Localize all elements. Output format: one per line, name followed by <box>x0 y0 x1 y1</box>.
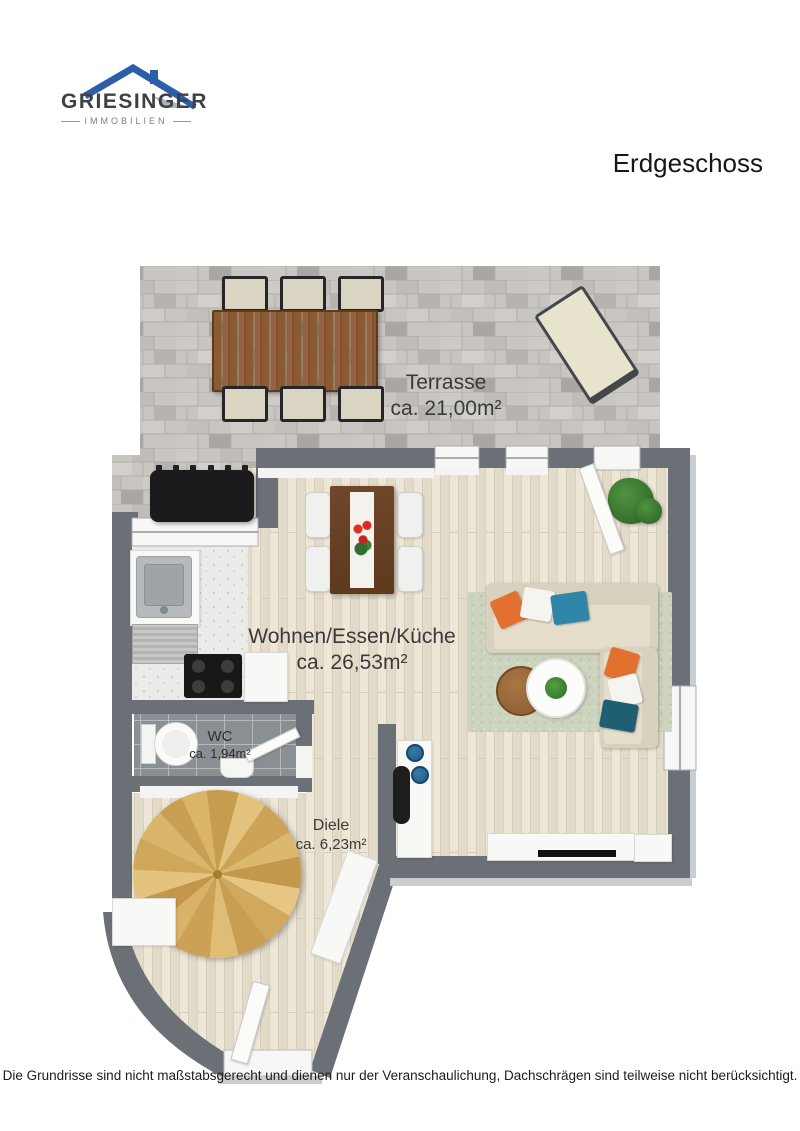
terrace-chair <box>222 276 268 312</box>
pillow-blue <box>550 591 590 626</box>
corner-plant-small <box>636 498 662 524</box>
coffee-table-white <box>526 658 586 718</box>
floor-plan-page: GRIESINGER IMMOBILIEN Erdgeschoss <box>0 0 800 1131</box>
dining-table <box>330 486 394 594</box>
terrace-dining-table <box>212 310 378 392</box>
room-label-wohnen: Wohnen/Essen/Küche ca. 26,53m² <box>248 624 455 675</box>
room-name: Terrasse <box>391 370 502 396</box>
room-area: ca. 6,23m² <box>296 836 367 854</box>
grill-knobs <box>150 465 254 471</box>
room-area: ca. 1,94m² <box>189 746 250 762</box>
room-name: Diele <box>296 816 367 836</box>
left-window <box>132 518 258 546</box>
kitchen-sink <box>136 556 192 618</box>
room-label-wc: WC ca. 1,94m² <box>189 728 250 762</box>
room-name: WC <box>189 728 250 746</box>
dining-chair <box>305 546 331 592</box>
tv-lowboard <box>487 833 635 861</box>
room-label-terrasse: Terrasse ca. 21,00m² <box>391 370 502 421</box>
room-label-diele: Diele ca. 6,23m² <box>296 816 367 854</box>
table-plant <box>545 677 567 699</box>
cooktop <box>184 654 242 698</box>
dining-chair <box>397 546 423 592</box>
terrace-chair <box>338 276 384 312</box>
bbq-grill <box>150 470 254 522</box>
pillow-teal <box>599 699 639 733</box>
desk-chair <box>393 766 410 824</box>
disclaimer-text: Die Grundrisse sind nicht maßstabsgerech… <box>0 1068 800 1083</box>
sink-faucet <box>160 606 168 614</box>
flower-centerpiece <box>352 520 372 556</box>
corner-cabinet <box>634 834 672 862</box>
room-area: ca. 26,53m² <box>248 650 455 676</box>
terrace-chair <box>338 386 384 422</box>
top-wall-openings <box>435 446 640 470</box>
terrace-chair <box>280 276 326 312</box>
terrace-chair <box>280 386 326 422</box>
room-area: ca. 21,00m² <box>391 396 502 422</box>
staircase-hub <box>212 869 222 879</box>
stool <box>406 744 424 762</box>
dining-chair <box>305 492 331 538</box>
tv <box>538 850 616 857</box>
hallway-cabinet <box>112 898 176 946</box>
pillow-white <box>520 587 556 623</box>
stool <box>411 766 429 784</box>
room-name: Wohnen/Essen/Küche <box>248 624 455 650</box>
dining-chair <box>397 492 423 538</box>
sink-basin <box>144 564 184 606</box>
terrace-chair <box>222 386 268 422</box>
